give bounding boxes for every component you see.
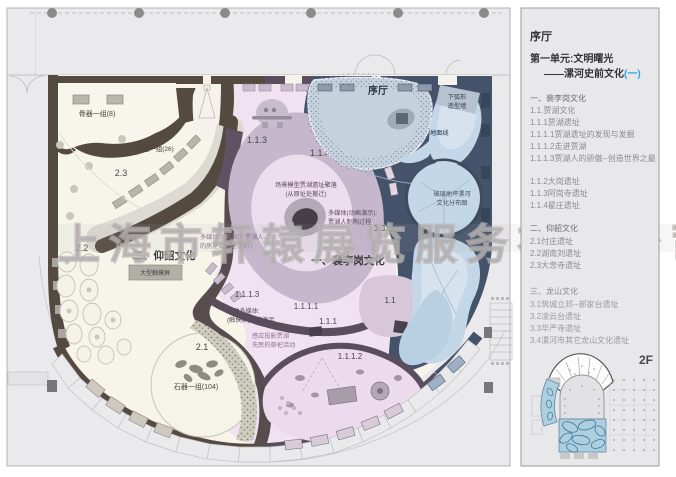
svg-text:1.1.1.3贾湖人的骄傲--创造世界之最: 1.1.1.3贾湖人的骄傲--创造世界之最 <box>530 153 656 163</box>
svg-text:1.1.1.1贾湖遗址的发现与发掘: 1.1.1.1贾湖遗址的发现与发掘 <box>530 129 634 139</box>
svg-text:二、仰韶文化: 二、仰韶文化 <box>530 223 578 233</box>
svg-text:1.1.1: 1.1.1 <box>319 317 337 326</box>
svg-text:骨器一组(8): 骨器一组(8) <box>79 109 116 118</box>
svg-text:陶器一组(26): 陶器一组(26) <box>136 144 174 153</box>
svg-text:2.2湖南刘遗址: 2.2湖南刘遗址 <box>530 248 581 258</box>
svg-text:多媒体(动画演示):: 多媒体(动画演示): <box>328 209 377 217</box>
svg-text:——漯河史前文化(一): ——漯河史前文化(一) <box>544 67 641 80</box>
svg-text:文化分布图: 文化分布图 <box>437 199 468 207</box>
svg-text:感应投影贾湖: 感应投影贾湖 <box>252 332 289 340</box>
svg-text:1.1: 1.1 <box>384 296 396 305</box>
svg-text:3.3华严寺遗址: 3.3华严寺遗址 <box>530 323 581 333</box>
svg-text:2.1: 2.1 <box>196 342 209 352</box>
svg-text:3.2凌云台遗址: 3.2凌云台遗址 <box>530 311 581 321</box>
svg-text:1.1.3阿岗寺遗址: 1.1.3阿岗寺遗址 <box>530 188 588 198</box>
svg-text:一、裴李岗文化: 一、裴李岗文化 <box>530 93 586 103</box>
svg-text:三、龙山文化: 三、龙山文化 <box>530 286 578 296</box>
svg-text:1.1.1.2: 1.1.1.2 <box>338 352 363 361</box>
svg-text:场景模型贾湖遗址聚落: 场景模型贾湖遗址聚落 <box>275 181 338 189</box>
svg-text:玻璃地坪漯河: 玻璃地坪漯河 <box>433 190 470 198</box>
svg-text:(从原址处搬迁): (从原址处搬迁) <box>285 190 326 198</box>
svg-text:1.1.贾湖文化: 1.1.贾湖文化 <box>530 105 575 115</box>
svg-text:1.1.2大岗遗址: 1.1.2大岗遗址 <box>530 176 580 186</box>
svg-text:1.1.1.1: 1.1.1.1 <box>294 302 319 311</box>
svg-text:1.1.1.3: 1.1.1.3 <box>235 290 260 299</box>
svg-text:序厅: 序厅 <box>530 29 552 43</box>
svg-text:3.1筑城立邦--郝家台遗址: 3.1筑城立邦--郝家台遗址 <box>530 299 618 309</box>
svg-text:序厅: 序厅 <box>368 84 388 97</box>
svg-text:互动多媒体:: 互动多媒体: <box>227 307 260 315</box>
svg-text:1.1.1贾湖遗址: 1.1.1贾湖遗址 <box>530 117 580 127</box>
svg-text:2F: 2F <box>639 353 653 367</box>
svg-text:第一单元:文明曙光: 第一单元:文明曙光 <box>530 52 613 65</box>
svg-text:1.1.1.2走进贾湖: 1.1.1.2走进贾湖 <box>530 142 586 151</box>
svg-text:2.3: 2.3 <box>115 168 128 178</box>
svg-text:石器一组(104): 石器一组(104) <box>174 382 218 391</box>
svg-text:1.1.4翟庄遗址: 1.1.4翟庄遗址 <box>530 200 580 210</box>
svg-text:大型触摸屏: 大型触摸屏 <box>140 269 170 277</box>
svg-text:2.3大悲寺遗址: 2.3大悲寺遗址 <box>530 260 581 270</box>
svg-text:下弧形: 下弧形 <box>448 93 467 101</box>
svg-text:(触摸屏)骨笛演示: (触摸屏)骨笛演示 <box>227 316 274 324</box>
svg-text:2.1付庄遗址: 2.1付庄遗址 <box>530 236 573 246</box>
svg-text:造型墙: 造型墙 <box>448 102 467 110</box>
svg-text:先民的祭祀活动: 先民的祭祀活动 <box>252 341 295 349</box>
svg-text:1.1.3: 1.1.3 <box>247 135 267 145</box>
svg-text:3.4漯河市其它龙山文化遗址: 3.4漯河市其它龙山文化遗址 <box>530 335 629 345</box>
svg-text:地面线: 地面线 <box>430 129 449 137</box>
